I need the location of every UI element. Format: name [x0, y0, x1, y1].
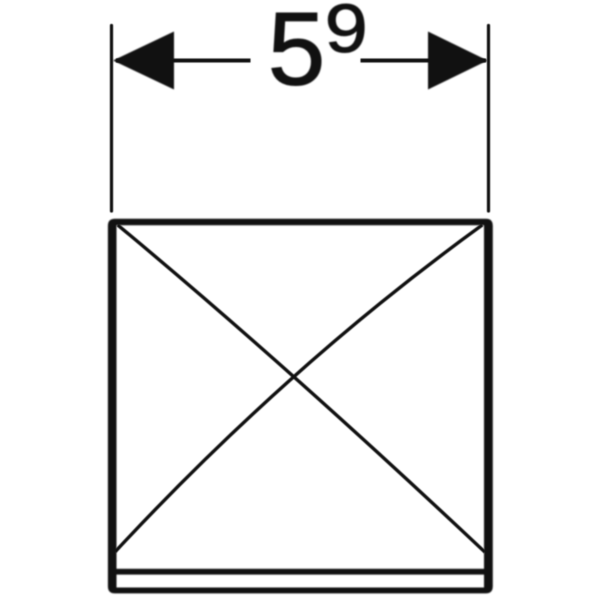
svg-text:9: 9 [325, 0, 368, 67]
svg-text:5: 5 [268, 0, 326, 107]
